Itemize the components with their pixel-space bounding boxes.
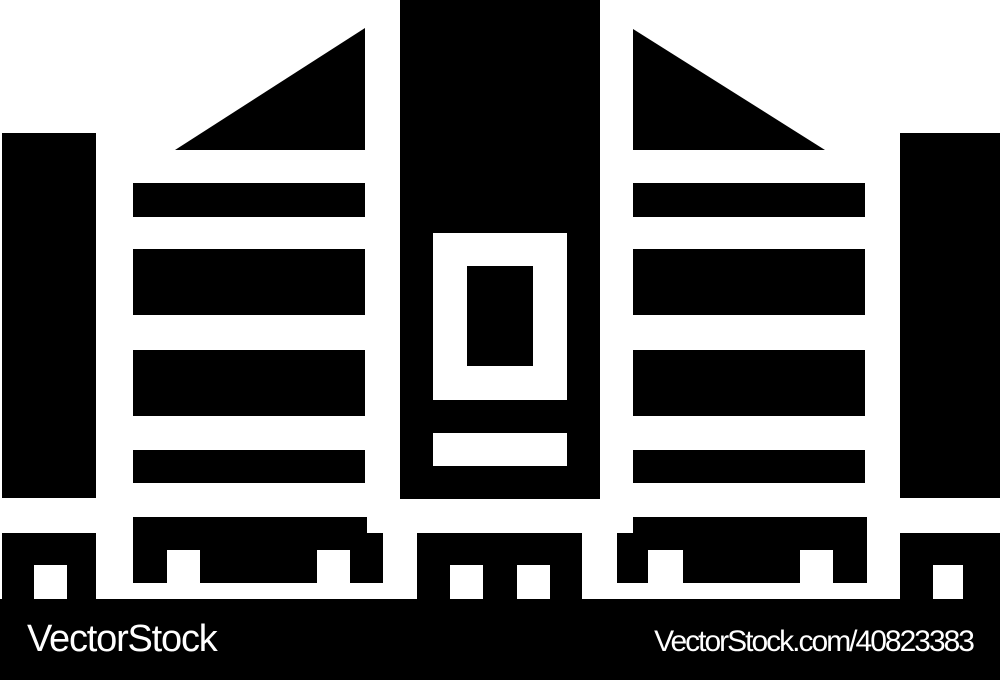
right-stripe-1 (633, 183, 865, 217)
watermark-bar: VectorStock VectorStock.com/40823383 (0, 599, 1000, 680)
left-base-step (367, 533, 383, 583)
right-side-pillar (900, 133, 1000, 498)
center-tower (400, 0, 600, 499)
right-base-notch-2 (800, 550, 833, 583)
right-building-base (617, 517, 867, 583)
left-stripe-4 (133, 450, 365, 483)
watermark-credit-text: VectorStock.com/40823383 (654, 601, 973, 680)
left-pillar-rect (2, 133, 96, 498)
center-ground-window-1 (450, 565, 483, 599)
left-stripe-2 (133, 249, 365, 315)
left-stripe-3 (133, 350, 365, 416)
center-ground-block (417, 533, 582, 599)
left-roof-triangle (175, 28, 365, 150)
city-buildings-glyph-icon (0, 0, 1000, 680)
left-side-pillar (2, 133, 96, 498)
watermark-brand-text: VectorStock (27, 599, 217, 680)
right-roof-triangle (633, 29, 825, 150)
right-pillar-rect (900, 133, 1000, 498)
left-ground-window (34, 565, 67, 599)
center-ground-window-2 (517, 565, 550, 599)
left-tower-stripes (133, 183, 365, 483)
left-building-base (133, 517, 383, 583)
center-lower-band (433, 433, 567, 466)
center-door-window (467, 266, 533, 366)
right-tower-stripes (633, 183, 865, 483)
right-stripe-4 (633, 450, 865, 483)
right-ground-block (900, 533, 1000, 599)
left-stripe-1 (133, 183, 365, 217)
stock-image-canvas: VectorStock VectorStock.com/40823383 (0, 0, 1000, 680)
right-base-step (617, 533, 633, 583)
right-ground-window (933, 565, 963, 599)
left-base-notch-2 (317, 550, 350, 583)
left-ground-block (2, 533, 96, 599)
right-stripe-2 (633, 249, 865, 315)
center-ground-rect (417, 533, 582, 599)
right-base-notch-1 (648, 550, 683, 583)
left-base-notch-1 (167, 550, 200, 583)
right-stripe-3 (633, 350, 865, 416)
